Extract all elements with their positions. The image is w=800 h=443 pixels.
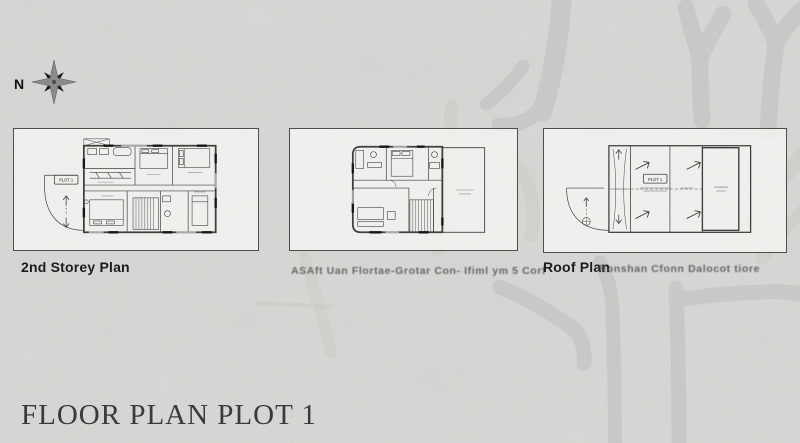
house-walls [84, 139, 216, 232]
caption-attic: ASAft Uan Flortae-Grotar Con- Ifiml ym 5… [291, 261, 546, 279]
panel-attic [289, 128, 518, 251]
compass-rose-icon [32, 60, 76, 104]
floor-plan-sheet: N [0, 0, 800, 443]
roof-drawing: PLOT 1 [544, 129, 786, 252]
second-storey-drawing: PLOT 1 [14, 129, 258, 250]
panel-roof: PLOT 1 [543, 128, 787, 253]
north-compass: N [10, 56, 94, 110]
caption-text: 2nd Storey Plan [21, 259, 130, 275]
caption-roof: Roof Plan Ronshan Cfonn Dalocot tiore [543, 259, 760, 277]
north-label: N [14, 76, 24, 92]
caption-ghost-text: ASAft Uan Flortae-Grotar Con- Ifiml ym 5… [291, 265, 546, 277]
plot-entry-drive [45, 175, 84, 230]
plot-label: PLOT 1 [648, 177, 663, 182]
room-label-marks [98, 172, 206, 196]
attic-drawing [290, 129, 517, 250]
roof-outline [609, 146, 751, 233]
fall-arrows [616, 150, 701, 224]
plot-entry-drive [567, 188, 609, 230]
caption-second-storey: 2nd Storey Plan [21, 259, 130, 277]
panel-second-storey: PLOT 1 [13, 128, 259, 251]
caption-ghost-text: Ronshan Cfonn Dalocot tiore [599, 263, 760, 275]
sheet-title: FLOOR PLAN PLOT 1 [21, 399, 317, 432]
plot-label: PLOT 1 [59, 178, 74, 183]
roof-terrace [442, 148, 484, 233]
furniture [356, 151, 440, 233]
furniture [84, 148, 209, 230]
